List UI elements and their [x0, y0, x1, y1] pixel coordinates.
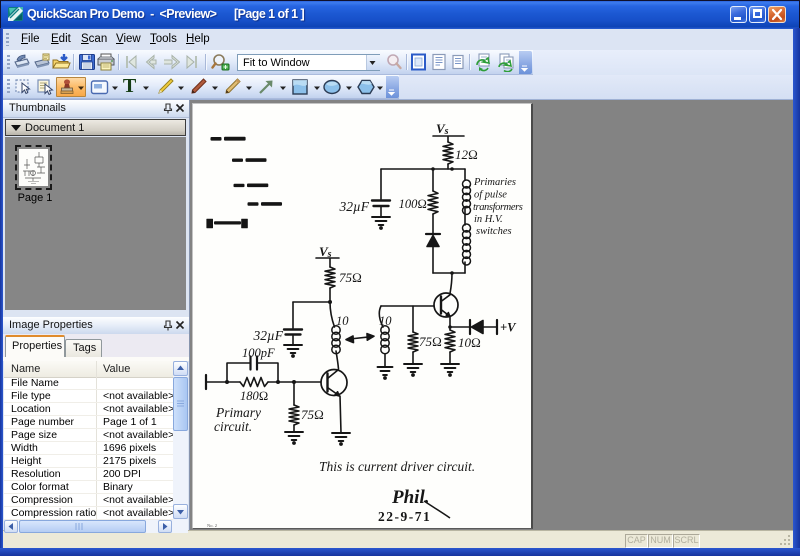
svg-text:Phil.: Phil. [391, 487, 429, 508]
svg-text:75Ω: 75Ω [339, 270, 362, 285]
svg-text:Primary: Primary [215, 405, 261, 420]
svg-text:32µF: 32µF [252, 328, 283, 343]
svg-text:This is current driver circuit: This is current driver circuit. [319, 459, 475, 474]
svg-text:12Ω: 12Ω [455, 147, 478, 162]
svg-text:10: 10 [336, 314, 349, 328]
svg-text:No. 2: No. 2 [207, 523, 217, 528]
svg-text:32µF: 32µF [338, 199, 369, 214]
svg-text:22-9-71: 22-9-71 [378, 509, 431, 524]
svg-text:Vs: Vs [436, 121, 449, 137]
svg-text:10Ω: 10Ω [458, 335, 481, 350]
svg-text:100pF: 100pF [242, 346, 275, 360]
svg-text:Vs: Vs [319, 244, 332, 260]
svg-text:10: 10 [379, 314, 392, 328]
svg-text:transformers: transformers [473, 202, 523, 213]
svg-text:180Ω: 180Ω [240, 389, 268, 403]
svg-text:+V: +V [500, 321, 517, 335]
svg-text:circuit.: circuit. [214, 419, 252, 434]
svg-text:100Ω: 100Ω [399, 197, 427, 211]
svg-text:switches: switches [476, 226, 512, 237]
svg-text:Primaries: Primaries [473, 177, 516, 188]
svg-text:75Ω: 75Ω [301, 407, 324, 422]
svg-text:of pulse: of pulse [474, 190, 507, 201]
svg-text:in H.V.: in H.V. [474, 214, 503, 225]
svg-text:75Ω: 75Ω [419, 334, 442, 349]
